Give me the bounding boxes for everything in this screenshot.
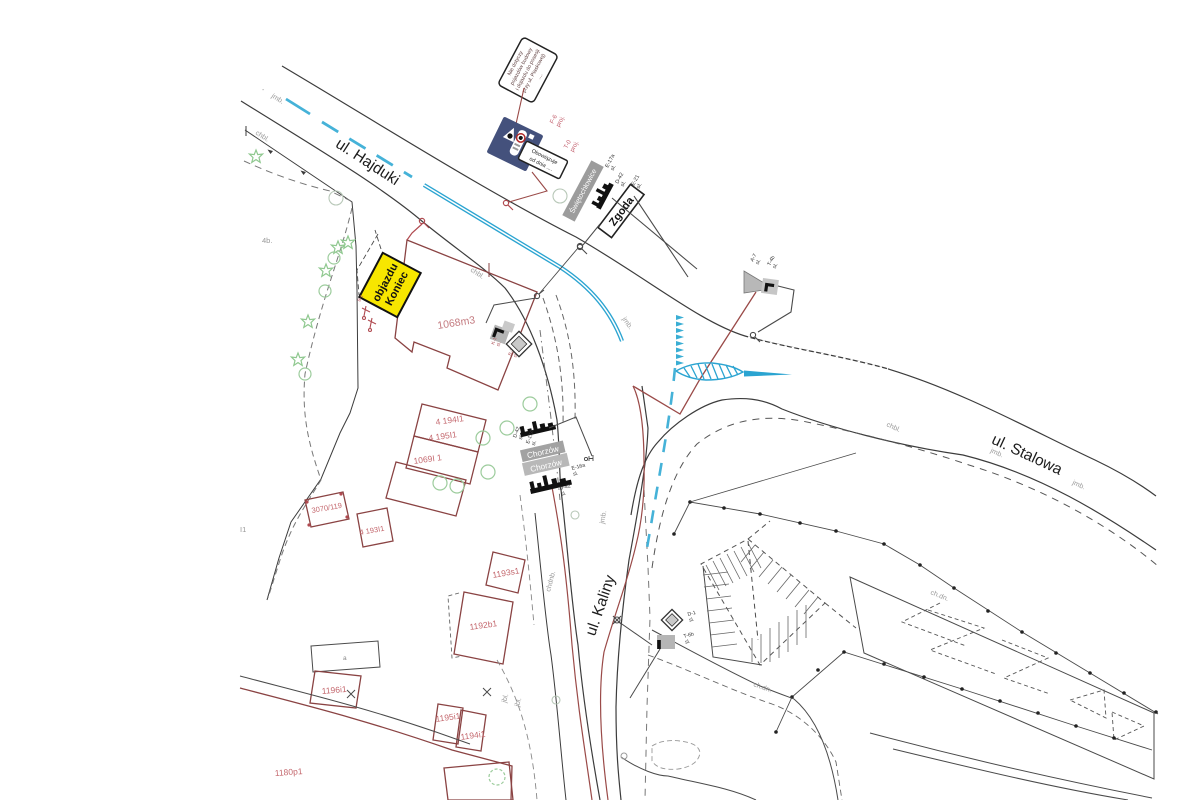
svg-text:1180p1: 1180p1 — [274, 766, 303, 778]
svg-text:I1: I1 — [240, 525, 246, 534]
svg-text:a: a — [343, 655, 347, 662]
svg-text:4b.: 4b. — [262, 236, 272, 245]
